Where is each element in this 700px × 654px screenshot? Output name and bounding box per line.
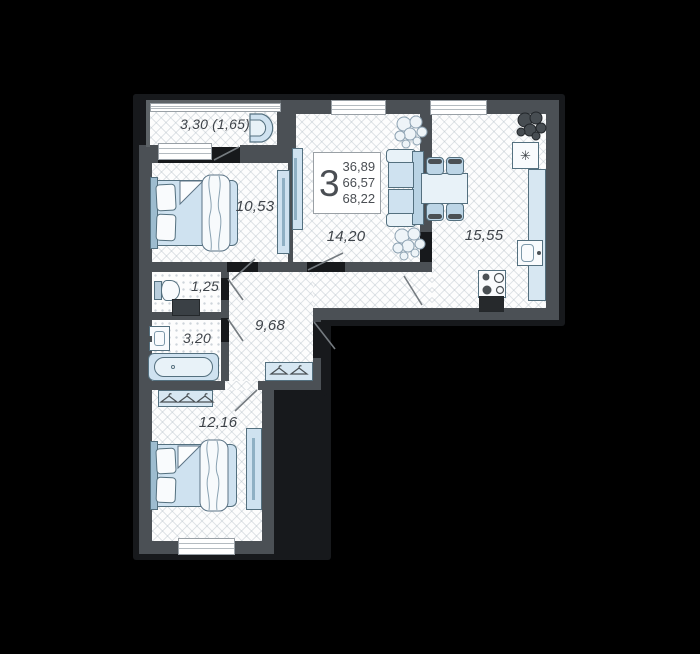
bathroom-area-label: 3,20 <box>177 330 217 346</box>
hallway-door-patch <box>225 381 258 390</box>
unit-area-living: 36,89 <box>343 159 376 175</box>
wall-right <box>546 100 559 320</box>
toilet-bowl <box>161 280 180 301</box>
wall-wc-right-c <box>221 342 229 381</box>
unit-area-total: 68,22 <box>343 191 376 207</box>
bedroom-1-wardrobe-door <box>282 178 285 246</box>
kitchen-counter <box>528 169 546 301</box>
fridge-snowflake-icon: ✳ <box>520 148 531 164</box>
tv-screen <box>294 158 297 220</box>
stove <box>478 270 506 298</box>
bedroom-2-wardrobe-door <box>252 438 255 500</box>
wall-bathroom-bottom <box>139 381 225 390</box>
bathroom-sink <box>149 326 170 351</box>
wall-entry-upper <box>313 308 321 322</box>
washing-machine <box>172 299 200 316</box>
oven <box>479 296 504 312</box>
bedroom-2-area-label: 12,16 <box>192 414 244 431</box>
dining-chair <box>446 157 464 175</box>
bathroom-sink-tap <box>148 336 152 342</box>
bedroom-1-area-label: 10,53 <box>229 198 281 215</box>
dining-chair <box>426 203 444 221</box>
wall-bedroom-2-right <box>262 390 274 554</box>
kitchen-sink <box>517 240 543 266</box>
sofa-cushion-bottom <box>388 189 414 214</box>
unit-area-main: 66,57 <box>343 175 376 191</box>
dining-table <box>421 173 468 204</box>
wall-living-bottom-left <box>293 262 307 272</box>
hallway-area-label: 9,68 <box>250 317 290 334</box>
bed-1-pillow-bottom <box>156 214 177 242</box>
bedroom-2-coat-rack <box>158 390 213 407</box>
wall-entry-lower <box>313 358 321 390</box>
wall-bottom-upper-section <box>313 308 559 320</box>
balcony-glazing <box>150 103 281 112</box>
bathtub-basin <box>154 357 213 377</box>
unit-rooms-count: 3 <box>319 165 340 202</box>
bathtub <box>148 353 219 381</box>
fridge: ✳ <box>512 142 539 169</box>
window-bedroom-2 <box>178 538 235 555</box>
kitchen-sink-basin <box>521 244 534 262</box>
sofa-cushion-top <box>388 162 414 188</box>
wall-top <box>281 100 559 114</box>
window-kitchen <box>430 100 487 115</box>
living-room-area-label: 14,20 <box>320 228 372 245</box>
wall-bedroom-1-bottom-stub <box>258 262 296 272</box>
hallway-wardrobe <box>265 362 313 381</box>
wall-bedroom-1-bottom <box>139 262 227 272</box>
bed-2-pillow-top <box>155 447 176 474</box>
balcony-area-label: 3,30 (1,65) <box>150 116 280 132</box>
bed-2-pillow-bottom <box>156 477 177 504</box>
bed-1-pillow-top <box>155 183 176 211</box>
bathroom-sink-basin <box>154 331 165 346</box>
wall-balcony-divider-left <box>139 145 158 163</box>
unit-summary-box: 3 36,89 66,57 68,22 <box>313 152 381 214</box>
bathtub-drain <box>171 365 175 369</box>
wc-area-label: 1,25 <box>185 278 225 294</box>
dining-chair <box>446 203 464 221</box>
window-living-room <box>331 100 386 115</box>
kitchen-sink-tap <box>537 251 541 255</box>
wall-hallway-bottom <box>258 381 321 390</box>
dining-chair <box>426 157 444 175</box>
wall-living-bottom-right <box>345 262 432 272</box>
kitchen-area-label: 15,55 <box>458 227 510 244</box>
wall-wc-right-b <box>221 300 229 318</box>
window-bedroom-1-balcony <box>158 143 212 160</box>
floor-plan: ✳ <box>0 0 700 654</box>
